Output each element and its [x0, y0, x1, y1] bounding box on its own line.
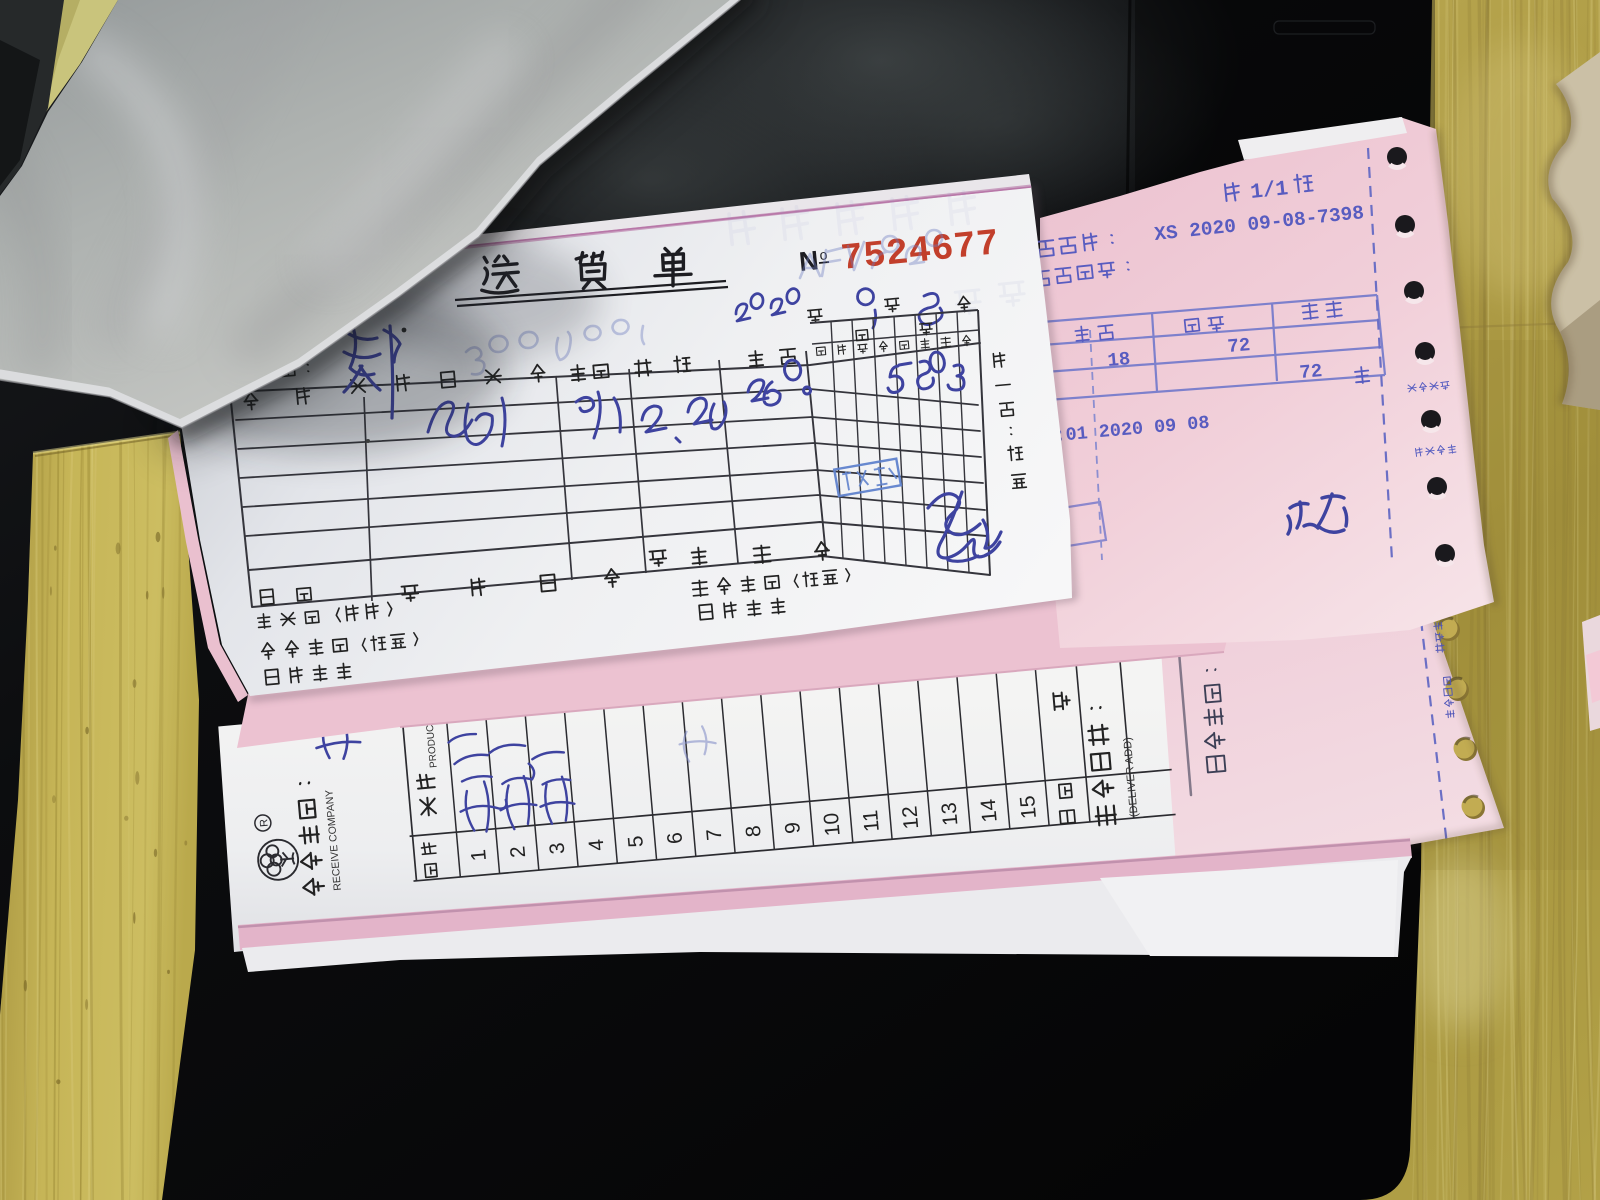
svg-text:72: 72	[1227, 334, 1252, 358]
svg-text:18: 18	[1107, 348, 1132, 372]
svg-text:4: 4	[585, 838, 609, 852]
svg-text:1/1: 1/1	[1249, 178, 1289, 205]
svg-text:7: 7	[703, 828, 727, 842]
svg-text:5: 5	[624, 835, 648, 849]
svg-text:8: 8	[742, 824, 766, 838]
svg-text:9: 9	[781, 821, 805, 835]
svg-text:10: 10	[820, 812, 845, 837]
svg-text:11: 11	[859, 809, 884, 833]
svg-text:R: R	[258, 818, 271, 827]
svg-text:3: 3	[546, 842, 570, 856]
svg-text:2: 2	[506, 845, 530, 859]
svg-text:72: 72	[1299, 360, 1324, 384]
svg-text:12: 12	[898, 805, 923, 830]
svg-text:6: 6	[663, 831, 687, 845]
svg-text:15: 15	[1016, 795, 1041, 820]
svg-text:14: 14	[977, 798, 1002, 824]
svg-text:13: 13	[938, 801, 963, 826]
svg-text:1: 1	[467, 848, 491, 862]
